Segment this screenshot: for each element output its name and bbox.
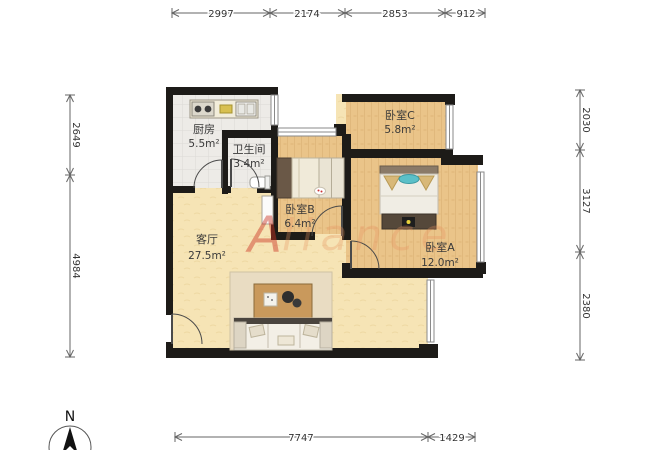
bedroom-a-label: 卧室A <box>425 240 455 254</box>
bathroom-area: 3.4m² <box>233 158 264 170</box>
bedroom-a-headboard <box>380 166 438 174</box>
sofa-cushion <box>278 336 294 345</box>
dim-right-1: 2030 <box>580 107 591 132</box>
wall-kitchen-bottom <box>166 186 195 193</box>
bedroom-a-area: 12.0m² <box>421 257 459 269</box>
bedroom-c-area: 5.8m² <box>384 124 415 136</box>
compass: N <box>49 409 91 450</box>
floor-plan-svg: A liance 厨房 5.5m² 卫生间 3.4m² 卧室C 5.8m² 卧室… <box>0 0 650 450</box>
sofa-armrest <box>320 322 332 348</box>
watermark: A liance <box>245 206 455 264</box>
cutting-board <box>220 105 232 113</box>
dim-top-4: 912 <box>456 9 475 20</box>
kitchen-label: 厨房 <box>193 123 215 136</box>
table-card <box>264 293 277 306</box>
sofa-armrest <box>234 322 246 348</box>
living-room-label: 客厅 <box>196 232 218 246</box>
wall-bathroom-top <box>222 130 278 138</box>
bedroom-b-label: 卧室B <box>285 202 315 216</box>
dim-left-1: 2649 <box>70 122 81 147</box>
wall-bedroom-c-right-stub <box>445 94 455 105</box>
kitchen-area: 5.5m² <box>188 138 219 150</box>
floor-plan-canvas: A liance 厨房 5.5m² 卫生间 3.4m² 卧室C 5.8m² 卧室… <box>0 0 650 450</box>
wall-living-bottom-corner <box>419 344 438 358</box>
toilet-tank <box>265 176 270 189</box>
coffee-table <box>254 284 312 320</box>
teal-pillow <box>399 175 419 184</box>
dim-bottom-2: 1429 <box>439 433 464 444</box>
wall-bedroom-c-top <box>342 94 454 102</box>
table-decor <box>293 299 302 308</box>
dim-top-1: 2997 <box>208 9 233 20</box>
sink-basin <box>247 104 254 114</box>
north-label: N <box>65 409 75 425</box>
stove-burner-icon <box>205 106 212 113</box>
dim-top-2: 2174 <box>294 9 319 20</box>
sofa-pillow <box>249 325 265 338</box>
outside-notch <box>276 82 336 128</box>
dim-bottom-1: 7747 <box>288 433 313 444</box>
wall-bedroom-a-bottom <box>342 268 483 278</box>
wall-bathroom-bottom-left <box>222 186 231 193</box>
dim-left-2: 4984 <box>70 253 81 278</box>
dim-right-2: 3127 <box>580 188 591 213</box>
bedroom-b-area: 6.4m² <box>284 218 315 230</box>
wall-kitchen-right-stub <box>271 87 278 95</box>
stove-burner-icon <box>195 106 202 113</box>
table-decor <box>282 291 294 303</box>
plate <box>315 187 326 195</box>
sofa-back <box>234 318 332 324</box>
wall-kitchen-top <box>166 87 278 95</box>
wall-bedroom-c-bottom <box>342 149 453 158</box>
dim-top-3: 2853 <box>382 9 407 20</box>
sofa-pillow <box>303 325 319 338</box>
living-room-area: 27.5m² <box>188 250 226 262</box>
wall-bedroom-a-right-corner <box>476 262 486 274</box>
sink-basin <box>238 104 245 114</box>
bathroom-label: 卫生间 <box>233 142 266 156</box>
dim-right-3: 2380 <box>580 293 591 318</box>
wall-bedroom-a-topright <box>441 155 483 165</box>
watermark-first-letter: A <box>245 206 282 264</box>
bedroom-b-headboard <box>277 158 292 198</box>
outside-top <box>336 82 436 94</box>
wall-left-upper <box>166 87 173 315</box>
bedroom-c-label: 卧室C <box>385 108 415 122</box>
